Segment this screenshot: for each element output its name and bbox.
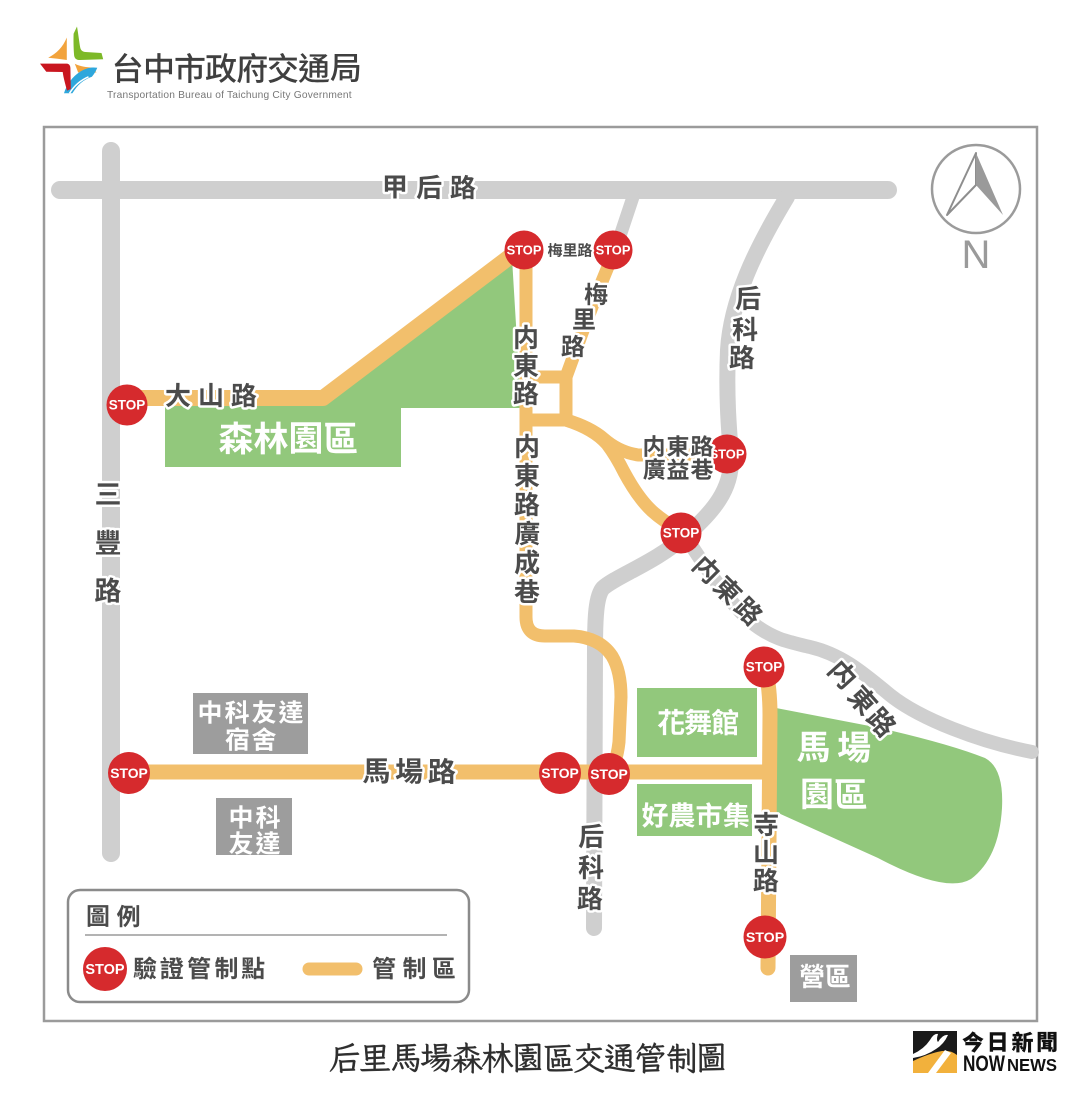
svg-text:STOP: STOP: [746, 660, 783, 675]
svg-text:Transportation Bureau of Taich: Transportation Bureau of Taichung City G…: [107, 90, 352, 101]
svg-text:STOP: STOP: [85, 962, 125, 978]
svg-text:N: N: [962, 233, 991, 277]
svg-text:STOP: STOP: [596, 243, 631, 258]
svg-text:STOP: STOP: [110, 765, 148, 781]
svg-text:NEWS: NEWS: [1007, 1055, 1057, 1075]
svg-text:STOP: STOP: [710, 447, 745, 462]
svg-text:STOP: STOP: [541, 765, 579, 781]
svg-text:STOP: STOP: [663, 526, 700, 541]
svg-text:STOP: STOP: [109, 398, 146, 413]
svg-text:STOP: STOP: [746, 930, 784, 946]
svg-text:STOP: STOP: [590, 766, 628, 782]
svg-text:NOW: NOW: [963, 1051, 1005, 1076]
svg-text:STOP: STOP: [507, 243, 542, 258]
